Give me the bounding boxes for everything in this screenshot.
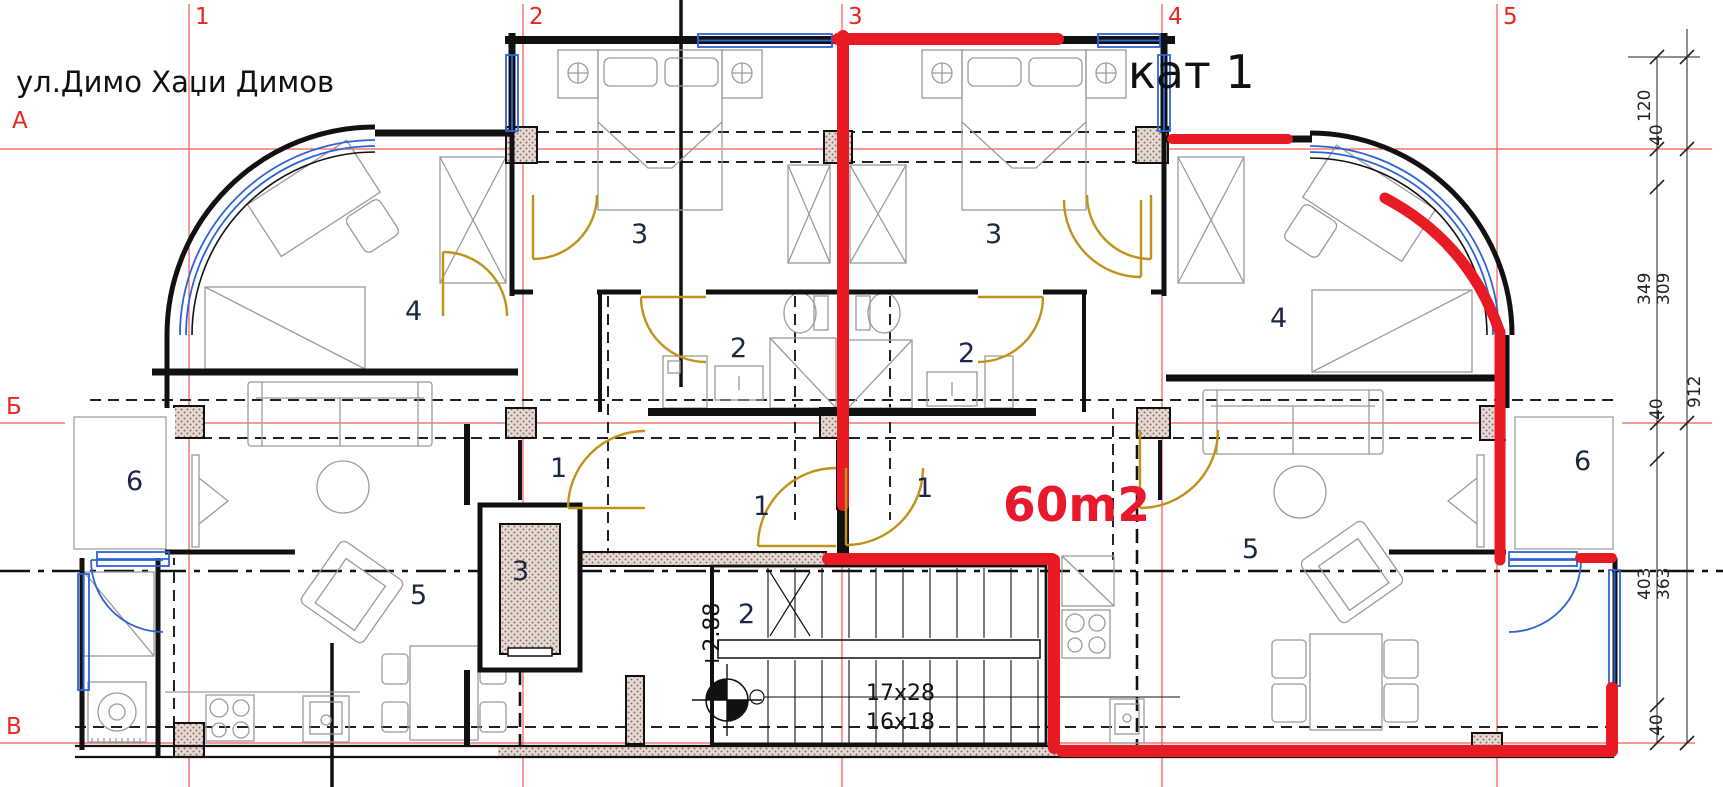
bath-sw-fixtures [84, 572, 154, 744]
elevator [480, 505, 580, 670]
dim-40-a: 40 [1647, 124, 1667, 146]
door-east-bath [978, 297, 1043, 362]
floorplan-page: 1 2 3 4 5 А Б В [0, 0, 1723, 787]
tv-west [192, 455, 228, 547]
door-west-bath [641, 297, 706, 362]
hatched-columns [174, 127, 1610, 757]
door-east-living [1140, 430, 1218, 508]
axis-col-3: 3 [848, 4, 863, 30]
room-west-bedroom: 3 [631, 219, 648, 250]
armchair-west [299, 539, 405, 645]
door-west-wing [443, 252, 507, 316]
stair-dim-top: 17x28 [866, 681, 935, 706]
room-west-living: 5 [410, 580, 427, 611]
axis-row-b: Б [6, 394, 22, 420]
desk-east [1278, 145, 1435, 299]
dimension-chain-right: 120 40 349 309 912 40 403 363 40 [1628, 29, 1705, 750]
street-name: ул.Димо Хаџи Димов [16, 65, 334, 99]
door-west-bedroom [533, 195, 597, 259]
bed-west [558, 50, 762, 210]
room-east-bedroom: 3 [985, 219, 1002, 250]
bed-east [922, 50, 1126, 210]
room-west-balcony: 6 [126, 466, 143, 497]
sofa-west [248, 382, 432, 446]
area-label: 60m2 [1003, 478, 1150, 533]
room-east-wing: 4 [1270, 303, 1287, 334]
axis-row-a: А [12, 108, 28, 134]
dim-40-b: 40 [1647, 398, 1667, 420]
room-west-wing: 4 [405, 296, 422, 327]
room-west-entry: 1 [753, 491, 770, 522]
dim-120: 120 [1635, 90, 1655, 122]
door-east-entry [846, 468, 923, 545]
dim-363: 363 [1654, 568, 1674, 600]
room-west-bath: 2 [730, 333, 747, 364]
axis-col-2: 2 [529, 4, 544, 30]
kitchen-east [1062, 556, 1144, 743]
door-west-corridor [568, 431, 645, 508]
axis-grid [0, 4, 1712, 787]
dim-40-c: 40 [1647, 714, 1667, 736]
dim-912: 912 [1685, 376, 1705, 408]
bathroom-east-fixtures [848, 293, 1013, 408]
room-west-hall: 1 [550, 453, 567, 484]
dim-309: 309 [1654, 273, 1674, 305]
room-elevator: 3 [512, 556, 529, 587]
table-round-west [317, 461, 369, 513]
red-apartment-outline [828, 36, 1612, 751]
level-benchmark-icon [706, 679, 727, 700]
axis-col-4: 4 [1168, 4, 1183, 30]
floorplan-drawing: 1 2 3 4 5 А Б В [0, 0, 1723, 787]
room-east-hall: 1 [916, 473, 933, 504]
bathroom-west-fixtures [663, 293, 836, 408]
room-east-living: 5 [1242, 534, 1259, 565]
room-stair-hall: 2 [738, 599, 755, 630]
room-east-bath: 2 [958, 338, 975, 369]
stair-dim-bottom: 16x18 [866, 710, 935, 735]
dining-east [1272, 634, 1418, 730]
tv-east [1448, 455, 1484, 547]
axis-col-5: 5 [1503, 4, 1518, 30]
desk-west [248, 140, 405, 294]
axis-col-1: 1 [195, 4, 210, 30]
dim-349: 349 [1635, 273, 1655, 305]
table-round-east [1274, 466, 1326, 518]
level-value: +2.88 [700, 603, 725, 670]
floor-title: кат 1 [1128, 45, 1255, 99]
axis-row-v: В [6, 714, 22, 740]
room-east-balcony: 6 [1574, 446, 1591, 477]
dim-403: 403 [1635, 568, 1655, 600]
